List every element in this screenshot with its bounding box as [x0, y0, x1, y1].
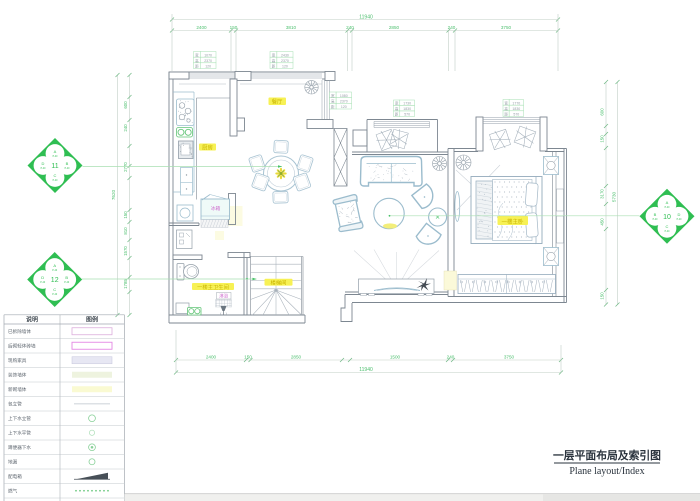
svg-text:P-40: P-40	[64, 282, 70, 284]
svg-text:1570: 1570	[123, 246, 128, 256]
svg-text:说明: 说明	[26, 316, 38, 324]
svg-text:C: C	[666, 224, 669, 229]
svg-text:P-40: P-40	[65, 168, 71, 170]
svg-text:A: A	[666, 200, 669, 205]
svg-text:2370: 2370	[340, 99, 348, 103]
svg-text:2850: 2850	[389, 25, 400, 30]
svg-text:120: 120	[282, 65, 288, 69]
svg-text:宽: 宽	[331, 93, 335, 98]
svg-text:P-40: P-40	[665, 231, 671, 233]
svg-text:距: 距	[272, 64, 276, 69]
svg-text:装饰墙体: 装饰墙体	[8, 372, 27, 379]
svg-text:新砌墙体: 新砌墙体	[8, 386, 27, 393]
svg-text:距: 距	[331, 104, 335, 109]
svg-text:高: 高	[395, 106, 399, 111]
svg-text:Plane layout/Index: Plane layout/Index	[569, 466, 644, 477]
svg-text:淋浴: 淋浴	[219, 293, 228, 300]
svg-text:240: 240	[448, 25, 456, 30]
svg-text:11940: 11940	[359, 367, 373, 373]
svg-text:B: B	[654, 212, 657, 217]
svg-text:1070: 1070	[204, 53, 212, 57]
svg-text:一楼主卧: 一楼主卧	[501, 217, 524, 225]
svg-text:D: D	[41, 275, 44, 280]
svg-text:P-40: P-40	[653, 219, 659, 221]
svg-text:后砌轻体砖墙: 后砌轻体砖墙	[8, 343, 36, 350]
svg-text:1830: 1830	[403, 107, 411, 111]
svg-text:距: 距	[195, 64, 199, 69]
svg-text:120: 120	[341, 105, 347, 109]
svg-text:冰箱: 冰箱	[211, 205, 221, 212]
svg-text:3750: 3750	[501, 25, 512, 30]
svg-text:D: D	[678, 212, 681, 217]
svg-text:A: A	[53, 263, 56, 268]
svg-text:P-40: P-40	[53, 180, 59, 182]
svg-text:2370: 2370	[281, 59, 289, 63]
svg-text:P-40: P-40	[665, 207, 671, 209]
svg-text:D: D	[42, 161, 45, 166]
svg-text:11940: 11940	[359, 15, 373, 21]
svg-text:P-40: P-40	[677, 219, 683, 221]
svg-text:B: B	[65, 275, 68, 280]
svg-text:240: 240	[447, 355, 455, 360]
svg-text:高: 高	[195, 58, 199, 63]
svg-text:10: 10	[663, 214, 671, 221]
svg-text:3810: 3810	[286, 25, 297, 30]
svg-text:高: 高	[272, 58, 276, 63]
svg-text:上下水平管: 上下水平管	[8, 430, 31, 437]
svg-text:3750: 3750	[504, 355, 515, 360]
svg-text:1830: 1830	[512, 107, 520, 111]
svg-text:P-40: P-40	[53, 156, 59, 158]
svg-text:蹲便器下水: 蹲便器下水	[8, 444, 31, 451]
svg-text:150: 150	[123, 211, 128, 219]
svg-text:厨房: 厨房	[202, 143, 213, 151]
svg-text:宽: 宽	[504, 100, 508, 105]
svg-text:150: 150	[600, 292, 605, 300]
svg-text:楼梯间: 楼梯间	[271, 278, 287, 286]
svg-text:11: 11	[51, 163, 58, 170]
svg-text:距: 距	[395, 112, 399, 117]
svg-text:1785: 1785	[123, 279, 128, 289]
svg-text:2400: 2400	[196, 25, 207, 30]
svg-text:600: 600	[600, 108, 605, 116]
svg-text:地漏: 地漏	[8, 459, 18, 466]
svg-text:距: 距	[504, 112, 508, 117]
svg-text:宽: 宽	[195, 52, 199, 57]
svg-text:配电箱: 配电箱	[8, 473, 22, 480]
svg-text:宽: 宽	[272, 52, 276, 57]
svg-text:图例: 图例	[86, 316, 98, 324]
svg-text:150: 150	[244, 355, 252, 360]
svg-text:已拆除墙体: 已拆除墙体	[8, 328, 31, 335]
svg-text:一层平面布局及索引图: 一层平面布局及索引图	[553, 448, 661, 462]
svg-text:450: 450	[600, 218, 605, 226]
svg-text:高: 高	[504, 106, 508, 111]
svg-text:120: 120	[205, 65, 211, 69]
svg-text:包立管: 包立管	[8, 401, 22, 408]
svg-text:240: 240	[346, 25, 354, 30]
svg-text:1080: 1080	[340, 94, 348, 98]
svg-text:600: 600	[123, 101, 128, 109]
svg-text:C: C	[53, 287, 56, 292]
svg-text:一楼主卫生间: 一楼主卫生间	[197, 283, 229, 291]
svg-text:150: 150	[600, 135, 605, 143]
svg-text:1730: 1730	[403, 102, 411, 106]
svg-text:P-40: P-40	[40, 282, 46, 284]
svg-text:1770: 1770	[512, 101, 520, 105]
svg-text:C: C	[54, 173, 57, 178]
svg-text:3170: 3170	[600, 189, 605, 199]
svg-text:P-40: P-40	[41, 168, 47, 170]
svg-text:5730: 5730	[612, 191, 617, 202]
svg-text:7620: 7620	[111, 189, 116, 200]
svg-text:A: A	[54, 149, 57, 154]
svg-text:燃气: 燃气	[8, 488, 18, 495]
svg-text:570: 570	[404, 113, 410, 117]
svg-text:570: 570	[513, 113, 519, 117]
svg-text:上下水立管: 上下水立管	[8, 415, 31, 422]
svg-text:P-40: P-40	[52, 270, 58, 272]
svg-text:B: B	[66, 161, 69, 166]
svg-text:2430: 2430	[281, 53, 289, 57]
svg-text:150: 150	[230, 25, 238, 30]
svg-text:1500: 1500	[390, 355, 401, 360]
svg-text:2850: 2850	[291, 355, 302, 360]
svg-text:2400: 2400	[206, 355, 217, 360]
svg-text:宽: 宽	[395, 101, 399, 106]
svg-text:高: 高	[331, 98, 335, 103]
svg-text:P-40: P-40	[52, 294, 58, 296]
svg-text:餐厅: 餐厅	[272, 98, 283, 106]
svg-text:2370: 2370	[204, 59, 212, 63]
svg-text:现购家具: 现购家具	[8, 357, 27, 364]
svg-text:12: 12	[51, 277, 59, 284]
svg-text:240: 240	[123, 124, 128, 132]
svg-text:810: 810	[123, 227, 128, 235]
